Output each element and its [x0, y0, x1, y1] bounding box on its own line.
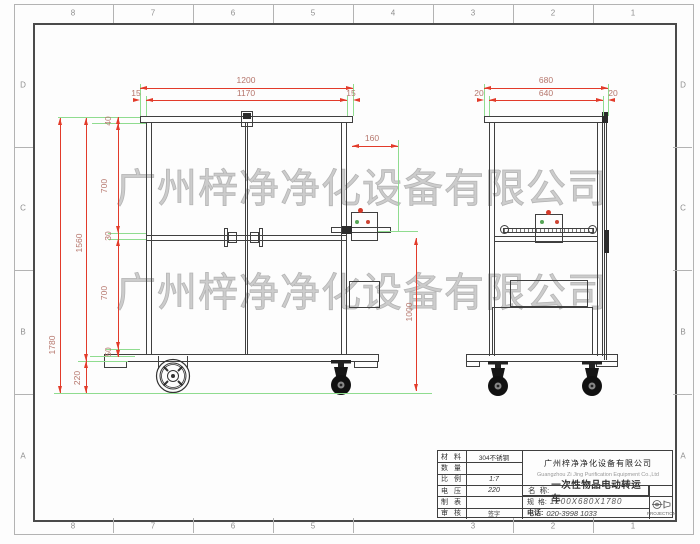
extension-line — [58, 117, 140, 118]
side-red-button — [546, 210, 551, 215]
dim-line — [60, 118, 61, 393]
tb-audit-value: 签字 — [466, 508, 522, 519]
front-hinge-left-hub — [228, 232, 237, 243]
front-handle-rod — [331, 227, 391, 233]
ground-line — [54, 393, 432, 394]
tb-voltage-value: 220 — [466, 485, 522, 496]
tb-material-label: 材 料 — [438, 451, 466, 462]
dim-bottom-clearance: 220 — [72, 371, 82, 385]
grid-row-label: C — [680, 204, 686, 213]
grid-col-label: 6 — [231, 9, 235, 18]
dim-front-margin-left: 15 — [131, 88, 140, 98]
title-block: 材 料 304不锈钢 数 量 比 例 1:7 电 压 220 制 表 审 核 签… — [437, 450, 673, 518]
dim-arrow — [414, 384, 418, 391]
extension-line — [108, 239, 146, 240]
dim-arrow — [352, 144, 359, 148]
front-hinge-right-hub — [250, 232, 259, 243]
grid-col-label: 6 — [231, 522, 235, 531]
grid-tick — [113, 518, 114, 533]
dim-arrow — [84, 118, 88, 125]
dim-arrow — [116, 239, 120, 246]
dim-arrow — [116, 226, 120, 233]
grid-col-label: 2 — [551, 522, 555, 531]
grid-tick — [113, 4, 114, 23]
dim-arrow — [58, 118, 62, 125]
front-red-button — [358, 208, 363, 213]
dim-arrow — [489, 98, 496, 102]
front-mid-rail — [146, 235, 347, 241]
side-handle-rod — [503, 228, 594, 233]
grid-tick — [673, 147, 692, 148]
front-right-end-plate — [354, 361, 378, 368]
side-stop-button — [555, 220, 559, 224]
grid-col-label: 3 — [471, 9, 475, 18]
tb-phone-cell: 电话: 020-3998 1033 — [522, 508, 649, 519]
side-upper-box — [510, 280, 588, 307]
side-rod-end-right — [588, 225, 597, 234]
dim-arrow — [84, 361, 88, 368]
product-name-label: 名 称: — [523, 485, 549, 496]
grid-tick — [193, 518, 194, 533]
dim-line — [118, 117, 119, 357]
grid-col-label: 7 — [151, 522, 155, 531]
front-rod-clamp — [342, 226, 352, 234]
grid-tick — [513, 518, 514, 533]
dim-height-total: 1780 — [47, 336, 57, 355]
grid-tick — [593, 518, 594, 533]
dim-arrow — [84, 354, 88, 361]
tb-voltage-label: 电 压 — [438, 485, 466, 496]
grid-col-label: 5 — [311, 522, 315, 531]
tb-spec-cell: 规 格: 1200X680X1780 — [522, 496, 649, 507]
phone-label: 电话: — [522, 508, 543, 518]
dim-arrow — [340, 98, 347, 102]
grid-tick — [353, 4, 354, 23]
dim-arrow — [84, 386, 88, 393]
extension-line — [603, 96, 604, 116]
grid-col-label: 2 — [551, 9, 555, 18]
phone-value: 020-3998 1033 — [546, 509, 596, 518]
dim-arrow — [133, 98, 140, 102]
tb-draft-label: 制 表 — [438, 496, 466, 507]
grid-tick — [14, 394, 33, 395]
dim-arrow — [391, 144, 398, 148]
dim-box-offset: 160 — [365, 133, 379, 143]
dim-seg-upper: 700 — [99, 179, 109, 193]
tb-material-value: 304不锈钢 — [466, 451, 522, 462]
side-right-wall — [597, 123, 603, 356]
dim-line — [416, 238, 417, 391]
dim-seg-lower: 700 — [99, 286, 109, 300]
front-left-end-plate — [104, 361, 127, 368]
front-green-button — [355, 220, 359, 224]
side-battery-box — [492, 307, 593, 355]
dim-arrow — [146, 98, 153, 102]
dim-front-width-inner: 1170 — [237, 88, 255, 98]
extension-line — [378, 231, 418, 232]
grid-col-label: 1 — [631, 522, 635, 531]
company-name-cn: 广州梓净净化设备有限公司 — [544, 458, 652, 469]
side-rod-end-left — [500, 225, 509, 234]
dim-side-depth-inner: 640 — [539, 88, 553, 98]
side-caster-front — [485, 360, 511, 398]
dim-front-margin-right: 15 — [346, 88, 355, 98]
tb-name-cell: 名 称: 一次性物品电动转运车 — [522, 485, 649, 496]
front-stop-button — [366, 220, 370, 224]
third-angle-projection-icon — [652, 499, 672, 510]
extension-line — [398, 140, 399, 231]
grid-col-label: 5 — [311, 9, 315, 18]
side-left-end-plate — [466, 361, 480, 367]
grid-row-label: C — [20, 204, 26, 213]
grid-tick — [513, 4, 514, 23]
front-top-latch-cap — [243, 113, 251, 119]
tb-draft-value — [466, 496, 522, 507]
dim-arrow — [414, 238, 418, 245]
spec-label: 规 格: — [522, 497, 547, 507]
front-drive-wheel — [155, 358, 191, 394]
dim-arrow — [58, 386, 62, 393]
grid-row-label: B — [20, 328, 25, 337]
grid-col-label: 1 — [631, 9, 635, 18]
side-top-rail — [484, 116, 608, 123]
dim-arrow — [477, 98, 484, 102]
spec-value: 1200X680X1780 — [550, 497, 623, 506]
dim-arrow — [116, 123, 120, 130]
dim-line — [86, 118, 87, 361]
grid-tick — [14, 270, 33, 271]
tb-qty-value — [466, 462, 522, 473]
front-side-box — [349, 281, 380, 308]
dim-front-width: 1200 — [237, 75, 256, 85]
side-green-button — [540, 220, 544, 224]
dim-side-depth: 680 — [539, 75, 553, 85]
grid-row-label: D — [20, 81, 26, 90]
dim-arrow — [116, 350, 120, 357]
dim-height-frame: 1560 — [74, 234, 84, 253]
dim-control-height: 1000 — [404, 303, 414, 322]
dim-arrow — [596, 98, 603, 102]
grid-col-label: 8 — [71, 522, 75, 531]
grid-tick — [273, 518, 274, 533]
grid-col-label: 8 — [71, 9, 75, 18]
dim-arrow — [353, 98, 360, 102]
grid-tick — [353, 518, 354, 533]
tb-audit-label: 审 核 — [438, 508, 466, 519]
grid-tick — [673, 270, 692, 271]
side-caster-rear — [579, 360, 605, 398]
tb-scale-value: 1:7 — [466, 474, 522, 485]
drawing-sheet: 广州梓净净化设备有限公司 广州梓净净化设备有限公司 8 7 6 5 4 3 2 … — [0, 0, 700, 544]
dim-seg-mid: 30 — [103, 231, 113, 240]
grid-tick — [14, 147, 33, 148]
grid-tick — [193, 4, 194, 23]
dim-side-margin-left: 20 — [474, 88, 483, 98]
dim-seg-bottom: 50 — [103, 347, 113, 356]
dim-arrow — [140, 86, 147, 90]
dim-arrow — [608, 98, 615, 102]
grid-tick — [273, 4, 274, 23]
extension-line — [347, 96, 348, 116]
grid-row-label: A — [20, 452, 25, 461]
grid-tick — [593, 4, 594, 23]
side-door-handle — [604, 230, 609, 253]
grid-tick — [673, 394, 692, 395]
grid-row-label: B — [680, 328, 685, 337]
tb-projection-cell: PROJECTION — [649, 496, 674, 519]
dim-seg-top: 40 — [103, 116, 113, 125]
front-caster-wheel — [328, 359, 354, 397]
tb-scale-label: 比 例 — [438, 474, 466, 485]
grid-row-label: D — [680, 81, 686, 90]
projection-label: PROJECTION — [647, 511, 676, 516]
grid-col-label: 7 — [151, 9, 155, 18]
tb-qty-label: 数 量 — [438, 462, 466, 473]
grid-col-label: 4 — [391, 9, 395, 18]
dim-arrow — [116, 342, 120, 349]
dim-side-margin-right: 20 — [608, 88, 617, 98]
grid-tick — [433, 4, 434, 23]
dim-arrow — [484, 86, 491, 90]
grid-col-label: 3 — [471, 522, 475, 531]
front-hinge-right-flange — [259, 228, 263, 247]
grid-row-label: A — [680, 452, 685, 461]
dim-arrow — [601, 86, 608, 90]
dim-line — [146, 100, 347, 101]
dim-line — [489, 100, 603, 101]
extension-line — [108, 233, 146, 234]
